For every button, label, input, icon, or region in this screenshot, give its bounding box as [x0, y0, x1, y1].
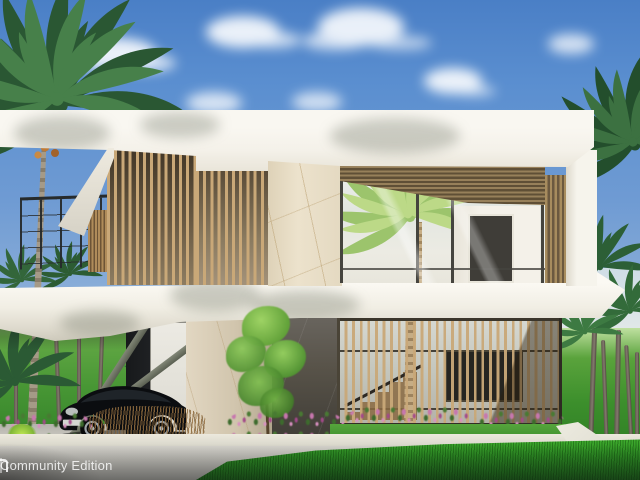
slat-wall-inner	[545, 175, 566, 283]
watermark-label: Community Edition	[0, 458, 113, 473]
cloud	[292, 92, 342, 112]
palm-shadow	[14, 116, 110, 150]
palm-shadow	[330, 118, 460, 154]
cloud	[318, 8, 404, 46]
palm-shadow	[140, 112, 220, 138]
cloud	[548, 34, 594, 54]
render-viewport: Community Edition	[0, 0, 640, 480]
coconut	[34, 151, 41, 158]
cloud	[206, 16, 280, 48]
end-wall	[566, 150, 597, 286]
cloud	[424, 68, 482, 94]
palm-shadow	[60, 310, 140, 336]
slat-screen-upper	[107, 149, 196, 285]
marble-wall-upper	[268, 156, 342, 286]
coconut	[51, 149, 59, 157]
slat-screen-upper	[196, 171, 270, 285]
